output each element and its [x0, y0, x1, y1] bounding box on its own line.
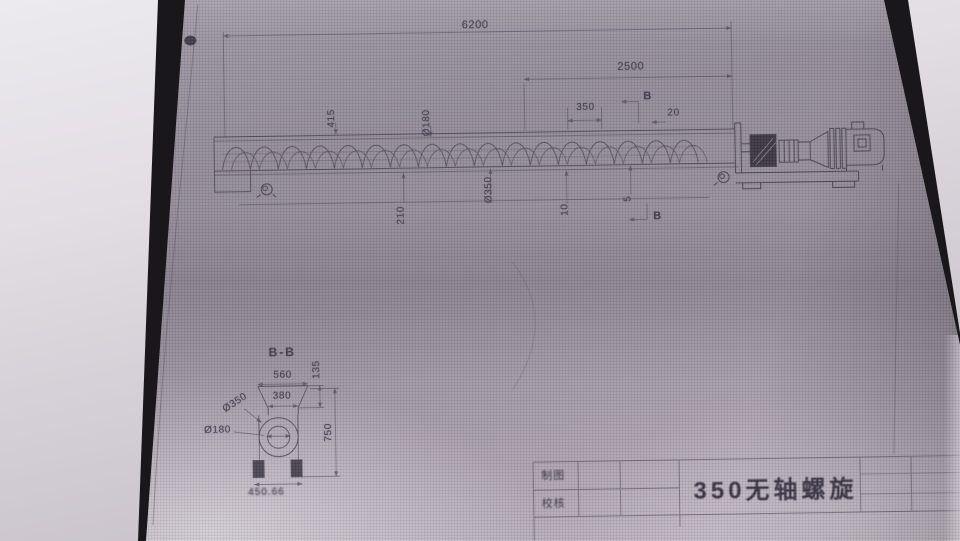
sheet-border-lines — [145, 0, 904, 525]
gear-reducer — [810, 132, 829, 168]
main-dimension-lines — [223, 21, 734, 226]
dim-pitch: 350 — [576, 102, 595, 113]
end-plate — [735, 123, 742, 173]
dim-dia350: Ø350 — [483, 176, 494, 203]
dim-5: 5 — [622, 195, 633, 201]
motor-vent — [854, 135, 870, 151]
dim-10: 10 — [559, 203, 570, 215]
section-letter-top: B — [643, 90, 651, 102]
dim-height: 750 — [323, 423, 334, 442]
titleblock-checked-by-label: 校核 — [542, 495, 566, 511]
section-title: B-B — [268, 345, 296, 359]
titleblock-drawing-title: 350无轴螺旋 — [693, 469, 857, 506]
dim-drive-span: 2500 — [617, 60, 644, 72]
dim-overall-length: 6200 — [462, 19, 489, 31]
drive-unit — [735, 121, 885, 189]
dim-dia180: Ø180 — [421, 109, 432, 136]
dim-foot-span: 450.66 — [248, 487, 285, 499]
dim-throat-width: 380 — [273, 390, 292, 401]
dim-210: 210 — [395, 206, 406, 225]
screw-spiral — [222, 140, 707, 170]
dim-inner-dia: Ø180 — [204, 424, 231, 435]
dim-top-width: 560 — [273, 369, 292, 380]
titleblock-drawn-by-label: 制图 — [541, 467, 565, 483]
dim-20: 20 — [667, 107, 679, 118]
dim-135: 135 — [311, 360, 322, 379]
photo-of-engineering-drawing: 6200 2500 350 20 B B 415 Ø180 210 Ø350 1… — [0, 0, 960, 541]
dim-415: 415 — [326, 109, 337, 128]
motor-terminal-box — [852, 122, 864, 129]
section-letter-bottom: B — [653, 210, 661, 222]
